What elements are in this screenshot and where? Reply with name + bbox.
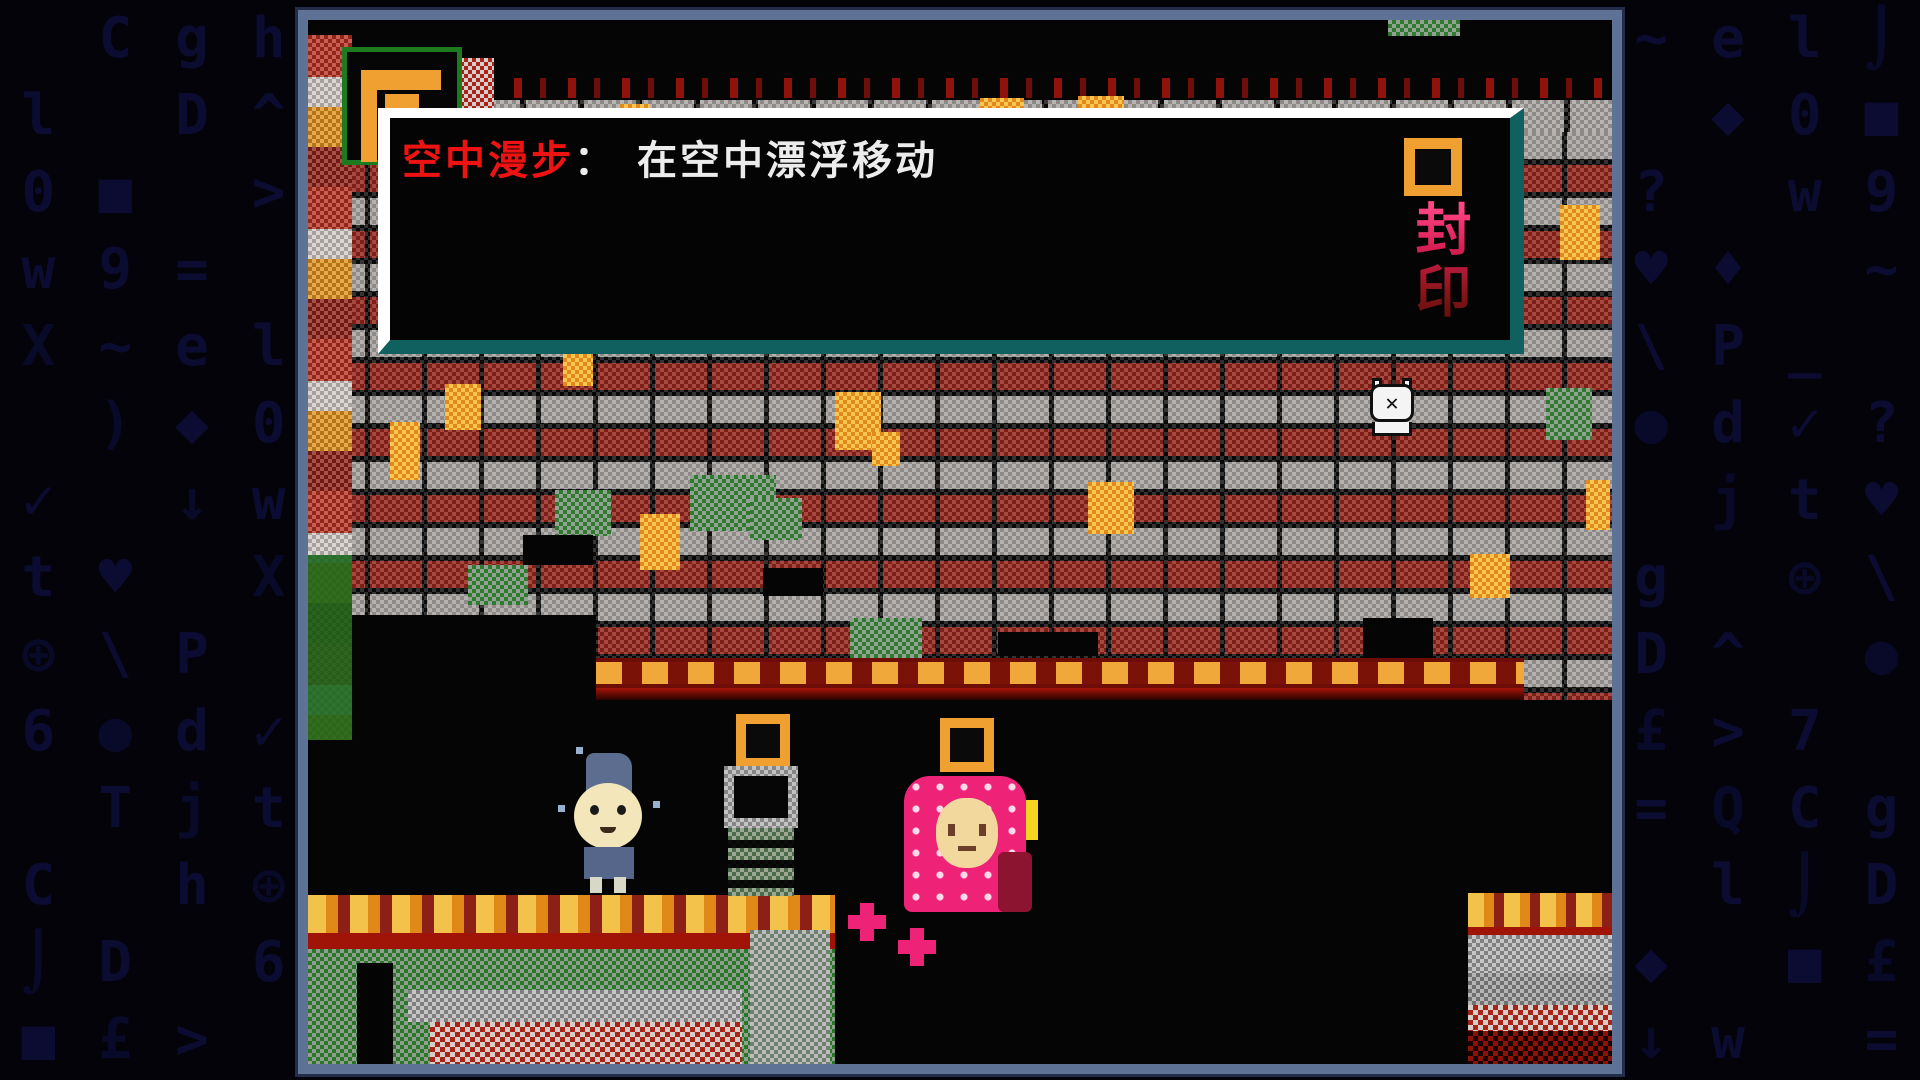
bg-glyph: ⊕ [230, 847, 307, 924]
pink-robe-yellow-accent [1026, 800, 1038, 840]
bg-glyph: _ [1766, 308, 1843, 385]
pink-cross-pickup [848, 903, 886, 941]
bg-glyph: P [154, 616, 231, 693]
bg-glyph: e [154, 308, 231, 385]
dialog-text: 空中漫步：在空中漂浮移动 [402, 136, 938, 186]
bg-glyph [1690, 539, 1767, 616]
wall-patch-moss [750, 498, 802, 540]
bg-glyph: D [154, 77, 231, 154]
platform-gray-column [750, 930, 830, 1064]
pink-robed-npc [904, 762, 1034, 912]
bg-glyph: 0 [230, 385, 307, 462]
bg-glyph [154, 924, 231, 1001]
bg-glyph: 6 [0, 693, 77, 770]
bg-glyph: ◆ [1613, 924, 1690, 1001]
bg-glyph: w [1690, 1001, 1767, 1078]
bottom-right-block [1468, 893, 1612, 1064]
bg-glyph: D [1613, 616, 1690, 693]
bg-glyph: g [154, 0, 231, 77]
bg-glyph: h [154, 847, 231, 924]
wall-patch-orange [1560, 205, 1600, 260]
white-jar-sprite: ✕ [1370, 384, 1414, 436]
bg-glyph: w [230, 462, 307, 539]
bg-glyph: 9 [1843, 154, 1920, 231]
wall-gap [1363, 618, 1433, 658]
bg-glyph: D [1843, 847, 1920, 924]
sparkle-dot [558, 805, 565, 812]
bg-glyph: ? [1843, 385, 1920, 462]
bg-glyph: £ [1843, 924, 1920, 1001]
blue-npc-mouth [600, 827, 616, 833]
bg-glyph: ■ [1766, 924, 1843, 1001]
bg-glyph [0, 0, 77, 77]
dialog-icon-ring [1415, 149, 1451, 185]
platform-gray-bricks [408, 990, 742, 1022]
bg-glyph: ■ [77, 154, 154, 231]
dialog-description: 在空中漂浮移动 [637, 138, 938, 184]
bg-glyph [1690, 154, 1767, 231]
bg-glyph: ⌡ [1843, 0, 1920, 77]
bg-glyph: g [1613, 539, 1690, 616]
blue-npc-eye [590, 805, 599, 815]
bg-glyph: > [1690, 693, 1767, 770]
bg-glyph: ) [77, 385, 154, 462]
bg-glyph [1766, 616, 1843, 693]
screen-background: Cgh⊕P_)◆■£>7jt♥♦~el⌡lD^6●✓?↓w=QCg⊕\P_◆0■… [0, 0, 1920, 1080]
bg-glyph: ⊕ [1766, 539, 1843, 616]
bg-glyph [1613, 77, 1690, 154]
bg-glyph [1766, 1001, 1843, 1078]
wall-gap [523, 535, 593, 565]
bg-glyph: j [154, 770, 231, 847]
platform-checker-bricks [430, 1022, 742, 1064]
bg-glyph: ■ [0, 1001, 77, 1078]
bg-glyph: ● [1613, 385, 1690, 462]
bg-glyph: ♥ [1843, 462, 1920, 539]
bg-glyph [154, 539, 231, 616]
wall-patch-orange [390, 422, 420, 480]
pink-cross-pickup [898, 928, 936, 966]
dialog-box[interactable]: 空中漫步：在空中漂浮移动 封印 [378, 108, 1524, 354]
wall-patch-orange [563, 350, 593, 386]
block-stripe-row [1468, 893, 1612, 927]
bg-glyph: £ [77, 1001, 154, 1078]
weathered-seal-sign: 封印 [1406, 200, 1470, 324]
bg-glyph: X [230, 539, 307, 616]
bg-glyph: ● [1843, 616, 1920, 693]
bg-glyph: t [1766, 462, 1843, 539]
bg-glyph: w [0, 231, 77, 308]
blue-npc-eye [617, 805, 626, 815]
bg-glyph: 9 [77, 231, 154, 308]
bg-glyph: = [1843, 1001, 1920, 1078]
bg-glyph: ^ [230, 77, 307, 154]
bg-glyph: D [77, 924, 154, 1001]
bg-glyph: Q [1690, 770, 1767, 847]
jar-skirt [1372, 422, 1412, 436]
bg-glyph: \ [1613, 308, 1690, 385]
bg-glyph: 7 [1766, 693, 1843, 770]
bg-glyph: ■ [1843, 77, 1920, 154]
bg-glyph [1613, 847, 1690, 924]
bg-glyph: ~ [77, 308, 154, 385]
block-red-line [1468, 927, 1612, 935]
game-frame: ✕ 空中漫步：在空中漂浮移动 封印 [298, 10, 1622, 1074]
orange-box-item-icon [736, 714, 790, 768]
dialog-separator: ： [574, 138, 617, 184]
bg-glyph: 6 [230, 924, 307, 1001]
block-gray-bricks [1468, 935, 1612, 973]
bg-glyph [230, 616, 307, 693]
cave-hole [357, 963, 393, 1064]
wall-patch-moss [1546, 388, 1592, 440]
bg-glyph [1843, 308, 1920, 385]
pink-robe-shadow [998, 852, 1032, 912]
bg-glyph: l [0, 77, 77, 154]
bg-glyph [1843, 693, 1920, 770]
orange-box-ring [950, 728, 984, 762]
wall-patch-orange [872, 432, 900, 466]
wall-gap [998, 632, 1098, 656]
bg-glyph: ^ [1690, 616, 1767, 693]
blue-npc-leg [614, 877, 626, 893]
block-dark-row [1468, 1031, 1612, 1064]
cross-bar [910, 928, 924, 966]
dialog-item-name: 空中漫步 [402, 138, 574, 184]
pedestal-column [728, 828, 794, 896]
bg-glyph [1690, 924, 1767, 1001]
bg-glyph: \ [77, 616, 154, 693]
block-gray-bricks-small [1468, 973, 1612, 1005]
bg-glyph: ↓ [1613, 1001, 1690, 1078]
blue-npc-face [574, 783, 642, 849]
bg-glyph: = [154, 231, 231, 308]
bg-glyph: ↓ [154, 462, 231, 539]
bg-glyph: ● [77, 693, 154, 770]
bg-glyph: e [1690, 0, 1767, 77]
bg-glyph: \ [1843, 539, 1920, 616]
bg-glyph [230, 1001, 307, 1078]
wall-patch-orange [640, 514, 680, 570]
blue-child-npc [566, 753, 650, 893]
jar-body-x-mark: ✕ [1370, 384, 1414, 422]
bg-glyph: l [1690, 847, 1767, 924]
bg-glyph: w [1766, 154, 1843, 231]
mossy-platform [308, 895, 835, 1064]
trim-base-line [596, 688, 1524, 700]
bg-glyph: C [1766, 770, 1843, 847]
platform-stripe-row [308, 895, 835, 933]
bg-glyph: ♦ [1690, 231, 1767, 308]
pedestal-frame-inner [734, 776, 788, 818]
bg-glyph [1766, 231, 1843, 308]
bg-glyph: t [230, 770, 307, 847]
bg-glyph: g [1843, 770, 1920, 847]
bg-glyph: ⌡ [1766, 847, 1843, 924]
bg-glyph: h [230, 0, 307, 77]
bg-glyph: ✓ [1766, 385, 1843, 462]
wall-gap [763, 568, 823, 596]
bg-glyph: ~ [1613, 0, 1690, 77]
bg-glyph [154, 154, 231, 231]
red-speckle-row [352, 78, 1612, 98]
cross-bar [860, 903, 874, 941]
orange-box-ring [746, 724, 780, 758]
bg-glyph [77, 847, 154, 924]
bg-glyph: ⌡ [0, 924, 77, 1001]
bg-glyph: ? [1613, 154, 1690, 231]
bg-glyph [230, 231, 307, 308]
bg-glyph: ♥ [77, 539, 154, 616]
wall-patch-moss [468, 565, 528, 605]
bg-glyph: ◆ [1690, 77, 1767, 154]
bg-glyph: > [230, 154, 307, 231]
wall-patch-moss [850, 618, 922, 658]
bg-glyph [0, 385, 77, 462]
sparkle-dot [653, 801, 660, 808]
bg-glyph: ⊕ [0, 616, 77, 693]
wall-patch-moss [1388, 20, 1460, 36]
pink-npc-face [936, 798, 998, 868]
bg-glyph: X [0, 308, 77, 385]
trim-dot-row [596, 662, 1524, 684]
wall-patch-orange [445, 384, 481, 430]
bg-glyph: C [77, 0, 154, 77]
bg-glyph [77, 77, 154, 154]
bg-glyph: ~ [1843, 231, 1920, 308]
wall-patch-orange [1088, 482, 1134, 534]
bg-glyph: 0 [0, 154, 77, 231]
sparkle-dot [576, 747, 583, 754]
bg-glyph [77, 462, 154, 539]
bg-glyph: ♥ [1613, 231, 1690, 308]
wall-patch-orange [1586, 480, 1610, 530]
bg-glyph: ✓ [230, 693, 307, 770]
bg-glyph: T [77, 770, 154, 847]
bg-glyph: t [0, 539, 77, 616]
wall-patch-moss [555, 490, 611, 536]
bg-glyph: > [154, 1001, 231, 1078]
blue-npc-leg [590, 877, 602, 893]
bg-glyph [0, 770, 77, 847]
bg-glyph: l [230, 308, 307, 385]
game-screen[interactable]: ✕ 空中漫步：在空中漂浮移动 封印 [308, 20, 1612, 1064]
bg-glyph [1613, 462, 1690, 539]
dialog-orange-box-icon [1404, 138, 1462, 196]
bg-glyph: C [0, 847, 77, 924]
bg-glyph: £ [1613, 693, 1690, 770]
bg-glyph: j [1690, 462, 1767, 539]
blue-npc-body [584, 847, 634, 879]
block-checker-row [1468, 1005, 1612, 1031]
pink-npc-mouth [958, 846, 976, 851]
bg-glyph: ✓ [0, 462, 77, 539]
bg-glyph: d [154, 693, 231, 770]
bg-glyph: ◆ [154, 385, 231, 462]
pink-npc-eye [979, 824, 986, 836]
wall-gap [352, 615, 596, 700]
bg-glyph: 0 [1766, 77, 1843, 154]
wall-patch-orange [1470, 554, 1510, 598]
bg-glyph: d [1690, 385, 1767, 462]
bg-glyph: P [1690, 308, 1767, 385]
wall-trim-band [596, 658, 1524, 700]
bg-glyph: = [1613, 770, 1690, 847]
bg-glyph: l [1766, 0, 1843, 77]
pedestal-frame [724, 766, 798, 828]
pink-npc-eye [948, 824, 955, 836]
